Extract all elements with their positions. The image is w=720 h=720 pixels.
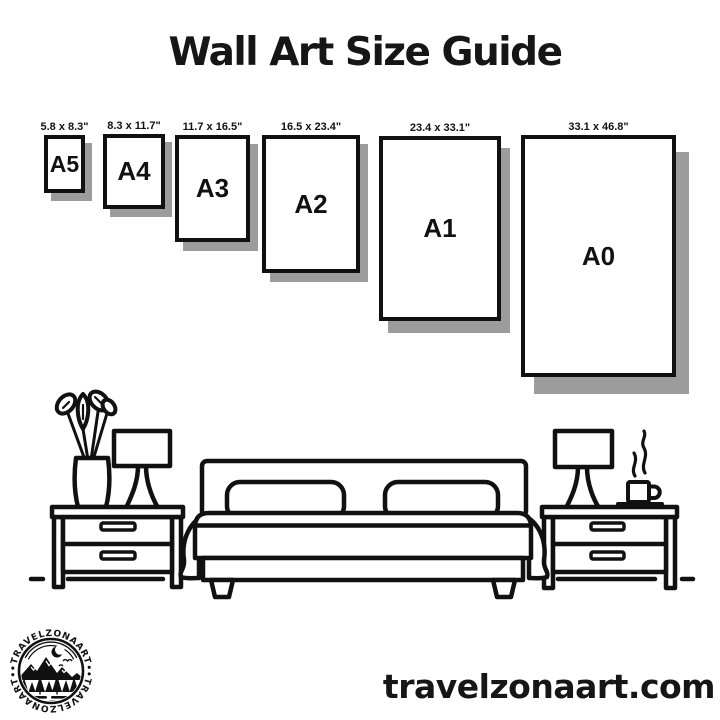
nightstand-left-top (52, 507, 183, 517)
bed-base (203, 558, 523, 580)
size-dimensions-a1: 23.4 x 33.1" (410, 122, 470, 134)
size-frame-a3: 11.7 x 16.5" A3 (175, 135, 250, 242)
mattress (195, 513, 531, 558)
size-frame-a4: 8.3 x 11.7" A4 (103, 134, 165, 209)
size-name-a4: A4 (117, 156, 150, 187)
website-url: travelzonaart.com (383, 667, 715, 706)
size-name-a5: A5 (50, 151, 79, 178)
bed-leg-left (211, 580, 233, 597)
size-dimensions-a5: 5.8 x 8.3" (40, 121, 88, 133)
nightstand-right-top (542, 507, 677, 517)
flower-vase-icon (53, 388, 118, 507)
size-dimensions-a0: 33.1 x 46.8" (568, 121, 628, 133)
size-dimensions-a3: 11.7 x 16.5" (183, 121, 243, 133)
size-frame-a0: 33.1 x 46.8" A0 (521, 135, 676, 377)
size-dimensions-a2: 16.5 x 23.4" (281, 121, 341, 133)
size-frame-a2: 16.5 x 23.4" A2 (262, 135, 360, 273)
steam-icon (633, 453, 635, 476)
size-name-a2: A2 (294, 189, 327, 220)
page-title: Wall Art Size Guide (168, 30, 561, 75)
table-lamp-right-icon (555, 431, 612, 508)
size-guide-infographic: Wall Art Size Guide 5.8 x 8.3" A5 8.3 x … (0, 0, 720, 720)
size-name-a0: A0 (582, 241, 615, 272)
size-name-a1: A1 (423, 213, 456, 244)
size-name-a3: A3 (196, 173, 229, 204)
size-dimensions-a4: 8.3 x 11.7" (107, 120, 161, 132)
bed-leg-right (493, 580, 515, 597)
coffee-cup-icon (618, 431, 662, 504)
nightstand-left-icon (54, 517, 181, 587)
size-frame-a1: 23.4 x 33.1" A1 (379, 136, 501, 321)
bedroom-illustration (0, 380, 720, 600)
bed-icon (181, 461, 548, 597)
brand-logo: •TRAVELZONAART• •TRAVELZONAART• (5, 622, 97, 718)
table-lamp-left-icon (114, 431, 170, 508)
steam-icon (643, 431, 646, 473)
size-frame-a5: 5.8 x 8.3" A5 (44, 135, 85, 193)
